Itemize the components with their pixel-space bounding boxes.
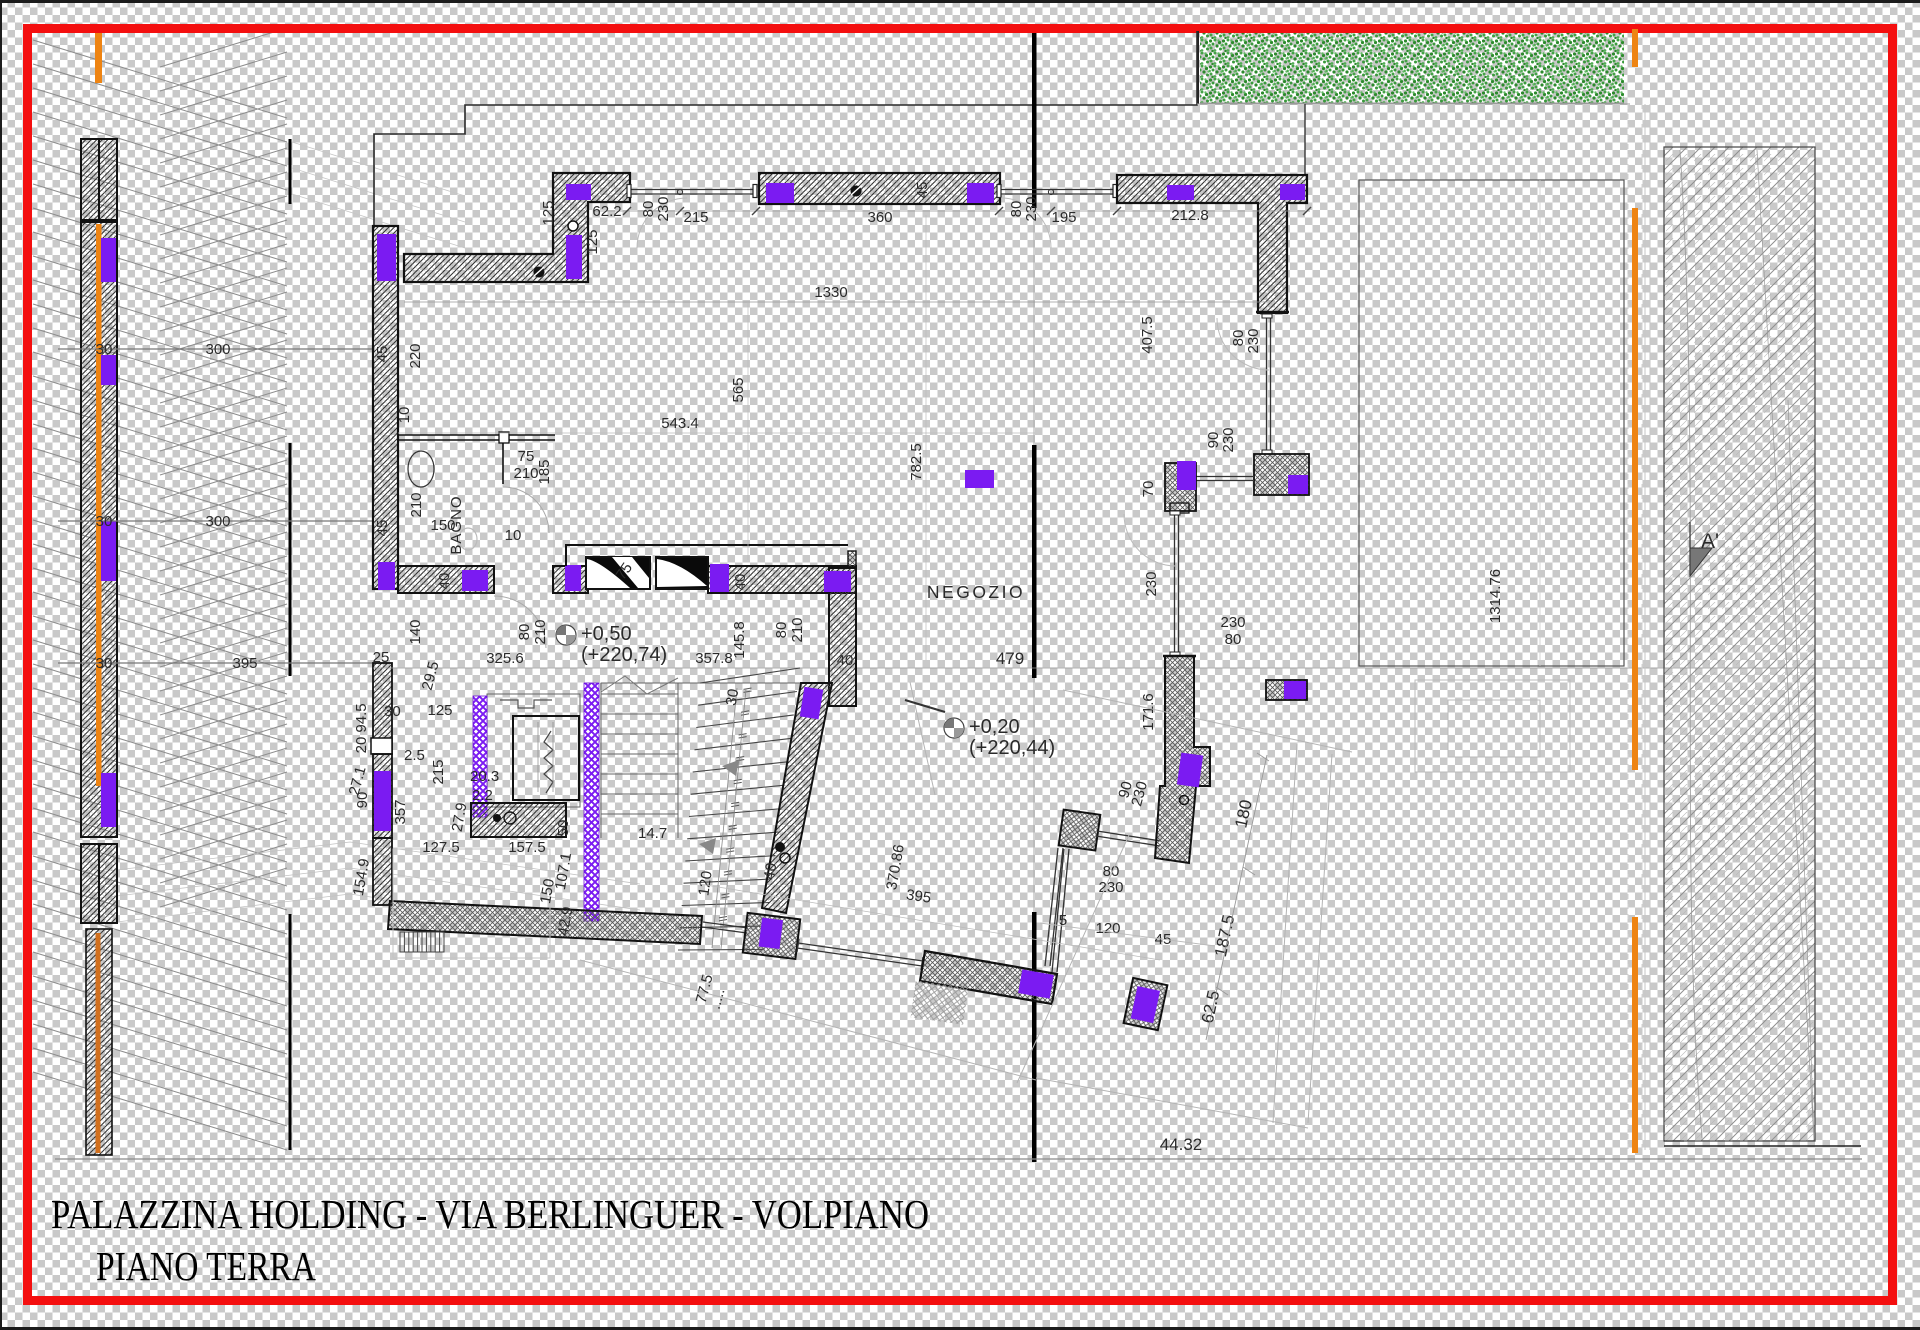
svg-text:94.5: 94.5 [353, 703, 370, 732]
svg-text:70: 70 [1140, 481, 1157, 498]
svg-text:325.6: 325.6 [486, 650, 524, 667]
svg-text:20.3: 20.3 [470, 768, 499, 785]
svg-text:300: 300 [205, 341, 230, 358]
svg-text:+0,50: +0,50 [581, 623, 632, 645]
svg-text:230: 230 [1220, 427, 1237, 452]
svg-text:215: 215 [683, 209, 708, 226]
svg-text:PALAZZINA HOLDING - VIA BERLIN: PALAZZINA HOLDING - VIA BERLINGUER - VOL… [51, 1191, 929, 1237]
svg-text:80: 80 [1103, 863, 1120, 880]
svg-text:215: 215 [430, 759, 447, 784]
svg-text:45: 45 [374, 346, 391, 363]
svg-text:230: 230 [1143, 571, 1160, 596]
svg-text:360: 360 [867, 209, 892, 226]
svg-text:565: 565 [730, 377, 747, 402]
svg-text:62.2: 62.2 [592, 203, 621, 220]
svg-text:(+220,44): (+220,44) [969, 737, 1055, 759]
svg-text:230: 230 [1245, 328, 1262, 353]
svg-text:210: 210 [408, 492, 425, 517]
svg-text:+0,20: +0,20 [969, 716, 1020, 738]
svg-text:10: 10 [505, 527, 522, 544]
svg-text:210: 210 [532, 619, 549, 644]
svg-text:357.8: 357.8 [695, 650, 733, 667]
svg-text:395: 395 [905, 886, 932, 906]
svg-text:300: 300 [205, 513, 230, 530]
svg-text:2.2: 2.2 [472, 787, 493, 804]
svg-text:145.8: 145.8 [731, 621, 748, 659]
svg-text:40: 40 [761, 862, 781, 881]
svg-text:230: 230 [1220, 614, 1245, 631]
svg-text:230: 230 [655, 196, 672, 221]
svg-text:30: 30 [723, 688, 743, 707]
svg-text:20: 20 [353, 737, 370, 754]
svg-text:357: 357 [392, 799, 409, 824]
svg-text:140: 140 [407, 619, 424, 644]
svg-text:157.5: 157.5 [508, 839, 546, 856]
svg-text:45: 45 [914, 182, 931, 199]
svg-text:NEGOZIO: NEGOZIO [927, 582, 1025, 602]
svg-text:210: 210 [513, 465, 538, 482]
svg-text:44.32: 44.32 [1160, 1135, 1203, 1154]
svg-text:407.5: 407.5 [1139, 316, 1156, 354]
svg-text:127.5: 127.5 [422, 839, 460, 856]
svg-text:212.8: 212.8 [1171, 207, 1209, 224]
svg-text:1330: 1330 [814, 284, 847, 301]
svg-text:782.5: 782.5 [908, 443, 925, 481]
svg-text:BAGNO: BAGNO [448, 495, 465, 554]
svg-text:171.6: 171.6 [1140, 693, 1157, 731]
svg-text:80: 80 [1225, 631, 1242, 648]
svg-text:543.4: 543.4 [661, 415, 699, 432]
svg-text:45: 45 [374, 520, 391, 537]
svg-text:30: 30 [96, 341, 113, 358]
svg-text:30: 30 [384, 703, 401, 720]
svg-text:PIANO TERRA: PIANO TERRA [96, 1243, 316, 1289]
svg-text:25: 25 [373, 649, 390, 666]
svg-text:125: 125 [540, 200, 557, 225]
svg-text:479: 479 [996, 649, 1024, 668]
svg-text:10: 10 [396, 407, 413, 424]
svg-text:125: 125 [427, 702, 452, 719]
svg-text:40: 40 [436, 573, 453, 590]
svg-text:80: 80 [773, 622, 790, 639]
svg-text:1314.76: 1314.76 [1487, 569, 1504, 623]
svg-text:80: 80 [516, 624, 533, 641]
svg-text:90: 90 [354, 792, 371, 809]
svg-text:40: 40 [732, 574, 749, 591]
svg-text:185: 185 [536, 459, 553, 484]
svg-text:210: 210 [789, 617, 806, 642]
svg-text:30: 30 [96, 655, 113, 672]
svg-text:50: 50 [555, 820, 572, 837]
svg-text:195: 195 [1051, 209, 1076, 226]
svg-text:30: 30 [96, 513, 113, 530]
svg-text:220: 220 [407, 343, 424, 368]
svg-text:2.5: 2.5 [404, 747, 425, 764]
svg-text:14.7: 14.7 [638, 825, 667, 842]
svg-text:(+220,74): (+220,74) [581, 644, 667, 666]
svg-text:230: 230 [1023, 196, 1040, 221]
svg-text:395: 395 [232, 655, 257, 672]
svg-text:120: 120 [695, 870, 715, 897]
svg-text:125: 125 [584, 229, 601, 254]
svg-text:120: 120 [1095, 920, 1120, 937]
svg-text:75: 75 [518, 448, 535, 465]
